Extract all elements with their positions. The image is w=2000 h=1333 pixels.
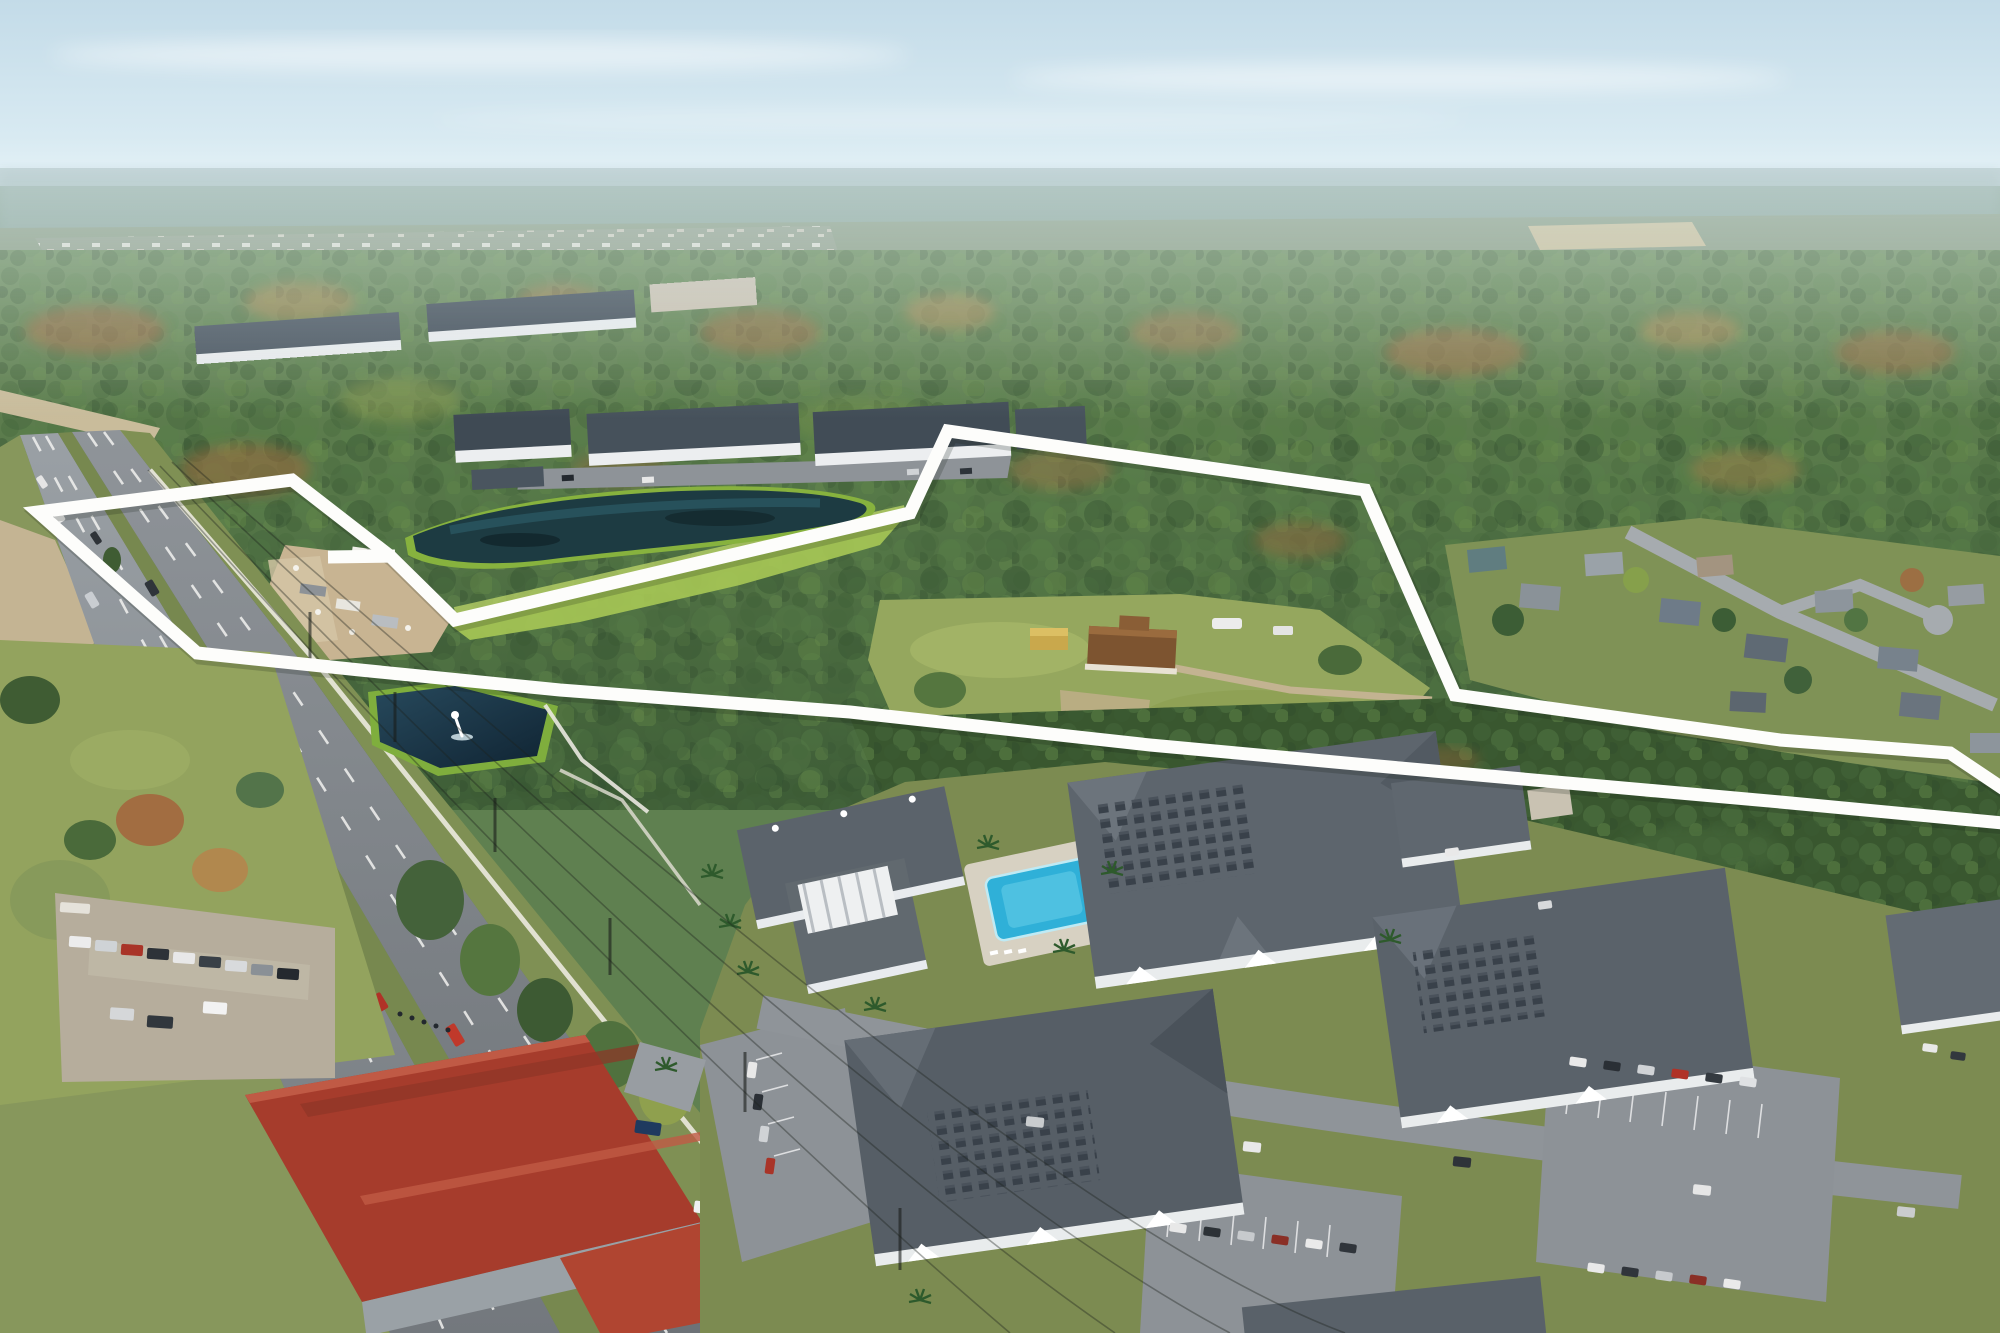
house-roof — [1877, 646, 1919, 671]
house-roof — [1970, 733, 2000, 753]
cul-de-sac — [1923, 605, 1953, 635]
house-roof — [1744, 634, 1789, 663]
house-roof — [1730, 691, 1767, 713]
house-roof — [1519, 583, 1561, 610]
house-roof — [1584, 552, 1623, 577]
tree — [1318, 645, 1362, 675]
house-roof — [1659, 598, 1701, 626]
property-boundary-spur — [328, 556, 395, 557]
rv-trailer — [1273, 626, 1293, 635]
house-roof — [1899, 692, 1941, 720]
tree — [914, 672, 966, 708]
pond-fountain — [451, 711, 459, 719]
building-e — [1885, 899, 2000, 1034]
house-roof — [1814, 589, 1853, 613]
aerial-photo — [0, 0, 2000, 1333]
house-roof — [1467, 546, 1507, 573]
house-roof — [1696, 554, 1734, 577]
storage-shed — [1030, 628, 1068, 650]
building-roof — [1885, 899, 2000, 1032]
atmosphere-haze — [0, 160, 2000, 420]
building-roof — [471, 466, 544, 490]
rooftop-ac-units — [1413, 935, 1545, 1033]
rv-trailer — [1212, 618, 1242, 629]
house-roof — [1947, 584, 1984, 606]
aerial-photo-canvas — [0, 0, 2000, 1333]
